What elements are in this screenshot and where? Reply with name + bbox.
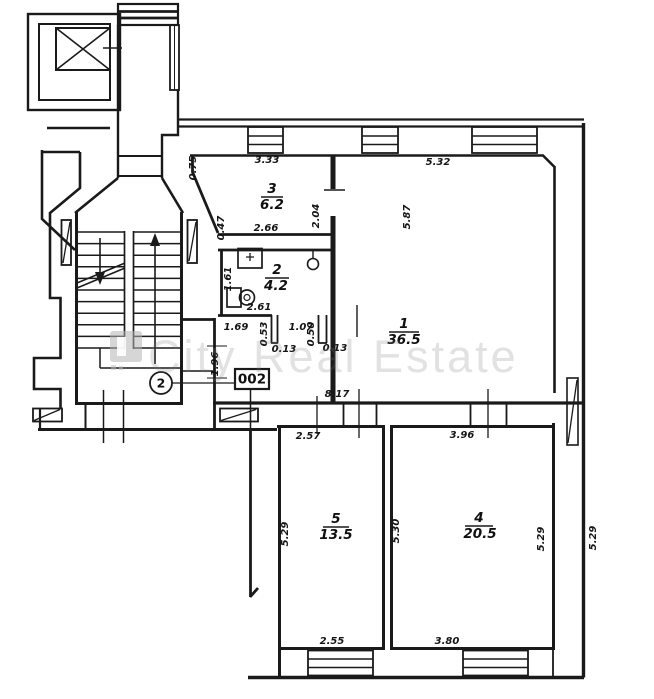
dim-label: 1.61: [223, 267, 234, 292]
svg-text:4.2: 4.2: [263, 278, 288, 294]
dim-label: 8.17: [325, 389, 350, 400]
floor-plan-drawing: 002 2 1 36.5 2 4.2 3 6.2 4 20.5 5 1: [0, 0, 654, 699]
svg-text:3: 3: [267, 181, 276, 197]
window-entry-left: [33, 409, 62, 422]
window-top-1: [248, 127, 283, 153]
floor-plan-page: 002 2 1 36.5 2 4.2 3 6.2 4 20.5 5 1: [0, 0, 654, 699]
dim-label: 3.96: [450, 430, 475, 441]
dim-label: 2.04: [311, 204, 322, 229]
dim-label: 5.29: [536, 527, 547, 552]
dim-label: 3.33: [255, 155, 280, 166]
window-right-duct: [567, 378, 578, 445]
window-bottom-room5: [308, 651, 373, 676]
room-4-label: 4 20.5: [463, 510, 496, 542]
dim-label: 2.55: [320, 636, 345, 647]
elevator-shaft: [28, 14, 122, 110]
watermark: City Real Estate: [110, 331, 519, 382]
window-stair-right: [188, 220, 198, 263]
dim-label: 2.57: [296, 431, 321, 442]
dim-label: 5.29: [280, 522, 291, 547]
svg-text:6.2: 6.2: [260, 197, 284, 213]
exterior-walls: [38, 120, 584, 678]
svg-text:13.5: 13.5: [319, 527, 352, 543]
dim-label: 5.32: [426, 157, 451, 168]
window-stair-left: [62, 220, 72, 265]
dim-label: 2.66: [254, 223, 279, 234]
boiler-icon: [308, 250, 319, 270]
watermark-text: City Real Estate: [148, 331, 519, 382]
elevator-x-icon: [56, 28, 110, 70]
chimney-flue: [75, 4, 183, 213]
room-3-label: 3 6.2: [260, 181, 284, 213]
svg-text:2: 2: [272, 262, 281, 278]
svg-text:4: 4: [473, 510, 483, 526]
dim-label: 5.87: [402, 205, 413, 230]
svg-text:1: 1: [399, 316, 408, 332]
window-top-3: [472, 127, 537, 153]
windows: [33, 127, 578, 676]
dim-label: 0.47: [216, 216, 227, 241]
window-bottom-room4: [463, 651, 528, 676]
svg-text:20.5: 20.5: [463, 526, 496, 542]
room-2-label: 2 4.2: [263, 262, 289, 294]
dim-label: 0.75: [188, 156, 199, 181]
dim-label: 5.30: [391, 519, 402, 544]
window-top-2: [362, 127, 398, 153]
dim-label: 5.29: [588, 526, 599, 551]
sink-icon: [238, 249, 262, 269]
window-entry-right: [220, 409, 258, 422]
room-5-label: 5 13.5: [319, 511, 352, 543]
dim-label: 3.80: [435, 636, 460, 647]
dim-label: 2.61: [247, 302, 272, 313]
svg-text:5: 5: [331, 511, 340, 527]
